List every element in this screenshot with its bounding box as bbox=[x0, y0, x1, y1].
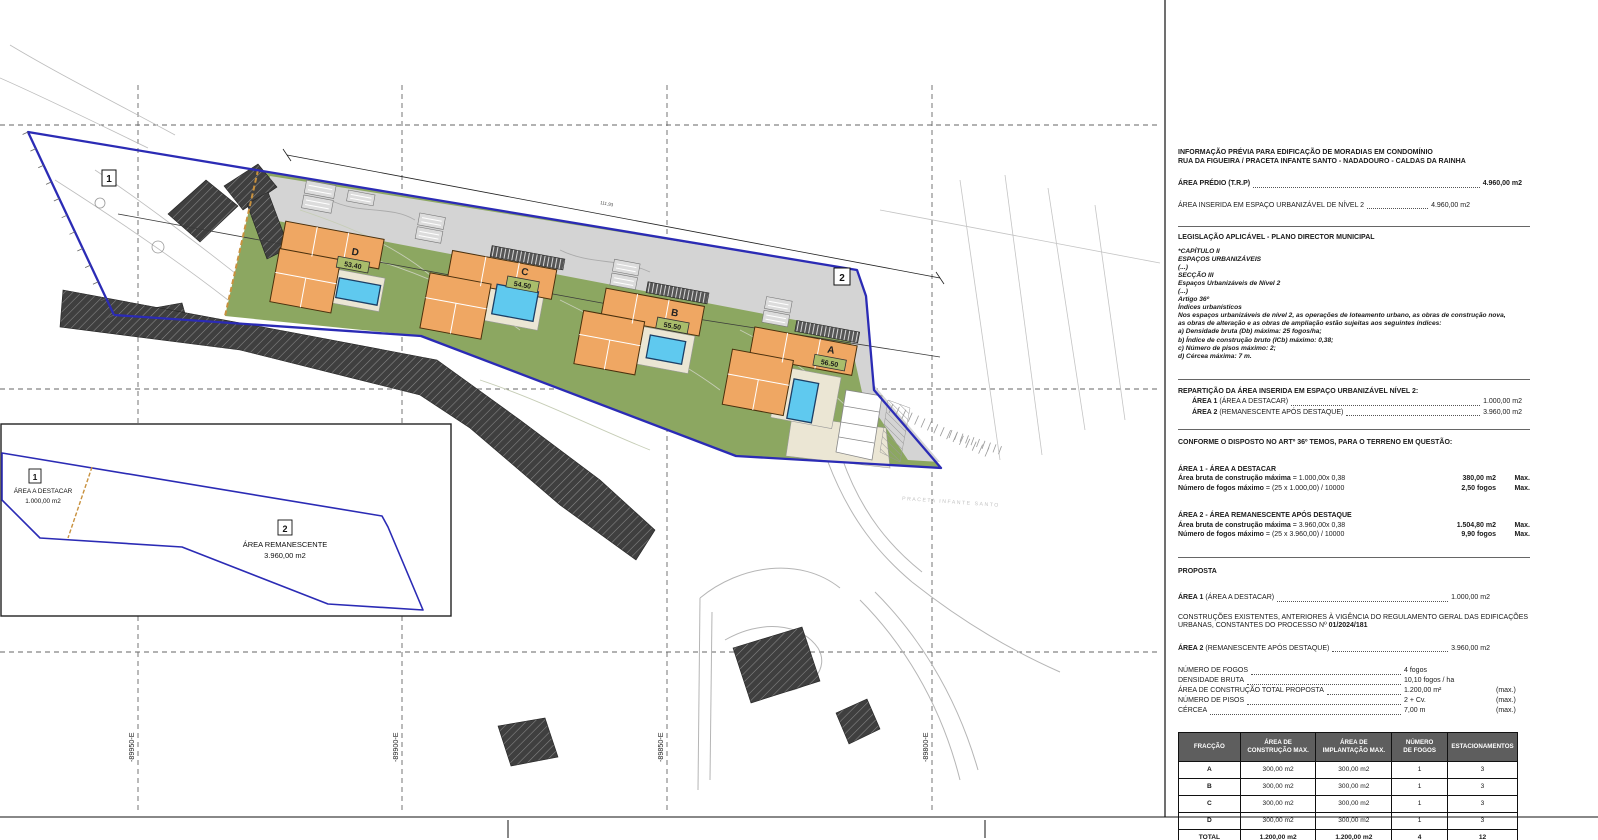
area-block-row-max: Max. bbox=[1496, 531, 1530, 540]
table-header-cell: NÚMERODE FOGOS bbox=[1392, 732, 1448, 761]
inset-area1-label: ÁREA A DESTACAR bbox=[14, 486, 73, 495]
reparticao-rows: ÁREA 1 (ÁREA A DESTACAR)1.000,00 m2ÁREA … bbox=[1192, 398, 1530, 417]
table-row: B300,00 m2300,00 m213 bbox=[1179, 778, 1518, 795]
dotted-leader bbox=[1367, 208, 1428, 209]
reparticao-row-value: 3.960,00 m2 bbox=[1483, 409, 1522, 418]
detachment-inset: 1 ÁREA A DESTACAR 1.000,00 m2 2 ÁREA REM… bbox=[1, 424, 451, 616]
inset-area2-label: ÁREA REMANESCENTE bbox=[243, 540, 328, 549]
table-row: C300,00 m2300,00 m213 bbox=[1179, 795, 1518, 812]
proposta-area1-value: 1.000,00 m2 bbox=[1451, 594, 1490, 603]
legislacao-line: Índices urbanísticos bbox=[1178, 304, 1530, 312]
reparticao-row-value: 1.000,00 m2 bbox=[1483, 398, 1522, 407]
area-block-title: ÁREA 1 - ÁREA A DESTACAR bbox=[1178, 466, 1530, 475]
proposal-row: NÚMERO DE PISOS2 + Cv.(max.) bbox=[1178, 697, 1530, 706]
dotted-leader bbox=[1346, 415, 1480, 416]
legislacao-title: LEGISLAÇÃO APLICÁVEL - PLANO DIRECTOR MU… bbox=[1178, 234, 1530, 243]
area-predio-row: ÁREA PRÉDIO (T.R.P) 4.960,00 m2 bbox=[1178, 180, 1522, 189]
table-total-row: TOTAL1.200,00 m21.200,00 m2412 bbox=[1179, 829, 1518, 840]
area-block-row-value: 380,00 m2 bbox=[1416, 475, 1496, 484]
table-cell: 3 bbox=[1448, 812, 1518, 829]
legislacao-line: c) Número de pisos máximo: 2; bbox=[1178, 345, 1530, 353]
legislacao-line: a) Densidade bruta (Db) máxima: 25 fogos… bbox=[1178, 328, 1530, 336]
separator bbox=[1178, 429, 1530, 430]
legislacao-line: Espaços Urbanizáveis de Nível 2 bbox=[1178, 280, 1530, 288]
panel-title-line2: RUA DA FIGUEIRA / PRACETA INFANTE SANTO … bbox=[1178, 157, 1530, 166]
panel-title-line1: INFORMAÇÃO PRÉVIA PARA EDIFICAÇÃO DE MOR… bbox=[1178, 148, 1530, 157]
area-block-row-max: Max. bbox=[1496, 522, 1530, 531]
reparticao-row-label: ÁREA 1 (ÁREA A DESTACAR) bbox=[1192, 398, 1288, 407]
table-header-cell: ESTACIONAMENTOS bbox=[1448, 732, 1518, 761]
table-cell: 300,00 m2 bbox=[1240, 812, 1316, 829]
table-cell: 3 bbox=[1448, 761, 1518, 778]
grid-label: -89900-E bbox=[391, 732, 400, 762]
proposal-row-label: NÚMERO DE PISOS bbox=[1178, 697, 1244, 706]
proposal-row-value: 4 fogos bbox=[1404, 667, 1496, 676]
table-header-cell: ÁREA DECONSTRUÇÃO MAX. bbox=[1240, 732, 1316, 761]
svg-text:1: 1 bbox=[106, 174, 112, 185]
area-inserida-label: ÁREA INSERIDA EM ESPAÇO URBANIZÁVEL DE N… bbox=[1178, 202, 1364, 211]
proposta-area2-value: 3.960,00 m2 bbox=[1451, 645, 1490, 654]
proposal-row-max: (max.) bbox=[1496, 687, 1530, 696]
legislacao-line: as obras de alteração e as obras de ampl… bbox=[1178, 320, 1530, 328]
area-block-row-label: Área bruta de construção máxima = 1.000,… bbox=[1178, 475, 1416, 484]
legislacao-line: ESPAÇOS URBANIZÁVEIS bbox=[1178, 256, 1530, 264]
dotted-leader bbox=[1251, 674, 1401, 675]
table-cell: 300,00 m2 bbox=[1316, 778, 1392, 795]
legislacao-block: *CAPÍTULO IIESPAÇOS URBANIZÁVEIS(...)SEC… bbox=[1178, 248, 1530, 361]
fractions-table: FRACÇÃOÁREA DECONSTRUÇÃO MAX.ÁREA DEIMPL… bbox=[1178, 732, 1518, 840]
legislacao-line: Nos espaços urbanizáveis de nível 2, as … bbox=[1178, 312, 1530, 320]
construcoes-line1: CONSTRUÇÕES EXISTENTES, ANTERIORES À VIG… bbox=[1178, 614, 1530, 623]
proposta-area1-sub: (ÁREA A DESTACAR) bbox=[1205, 594, 1274, 601]
proposal-row-value: 2 + Cv. bbox=[1404, 697, 1496, 706]
proposal-row: CÉRCEA7,00 m(max.) bbox=[1178, 707, 1530, 716]
conforme-title: CONFORME O DISPOSTO NO ARTº 36º TEMOS, P… bbox=[1178, 439, 1530, 448]
proposal-row: NÚMERO DE FOGOS4 fogos bbox=[1178, 667, 1530, 676]
table-cell: 3 bbox=[1448, 778, 1518, 795]
area-inserida-row: ÁREA INSERIDA EM ESPAÇO URBANIZÁVEL DE N… bbox=[1178, 202, 1470, 211]
separator bbox=[1178, 226, 1530, 227]
proposal-row-value: 7,00 m bbox=[1404, 707, 1496, 716]
dotted-leader bbox=[1291, 405, 1480, 406]
legislacao-line: (...) bbox=[1178, 288, 1530, 296]
area1-marker: 1 bbox=[102, 170, 116, 186]
proposal-rows: NÚMERO DE FOGOS4 fogosDENSIDADE BRUTA10,… bbox=[1178, 667, 1530, 716]
table-total-cell: 12 bbox=[1448, 829, 1518, 840]
construcoes-line2: URBANAS, CONSTANTES DO PROCESSO Nº 01/20… bbox=[1178, 622, 1530, 631]
boundary-wall-ticks bbox=[23, 132, 114, 318]
dotted-leader bbox=[1327, 694, 1401, 695]
table-row: D300,00 m2300,00 m213 bbox=[1179, 812, 1518, 829]
proposal-row-label: DENSIDADE BRUTA bbox=[1178, 677, 1244, 686]
table-cell: 300,00 m2 bbox=[1240, 795, 1316, 812]
inset-area2-value: 3.960,00 m2 bbox=[264, 551, 306, 560]
table-cell: 300,00 m2 bbox=[1240, 778, 1316, 795]
table-cell: B bbox=[1179, 778, 1241, 795]
dotted-leader bbox=[1247, 704, 1401, 705]
table-header-cell: ÁREA DEIMPLANTAÇÃO MAX. bbox=[1316, 732, 1392, 761]
grid-label: -89850-E bbox=[656, 732, 665, 762]
area-block-row-value: 9,90 fogos bbox=[1416, 531, 1496, 540]
dotted-leader bbox=[1253, 187, 1480, 188]
area-inserida-value: 4.960,00 m2 bbox=[1431, 202, 1470, 211]
table-cell: 1 bbox=[1392, 795, 1448, 812]
inset-marker-2: 2 bbox=[282, 524, 287, 534]
table-header-row: FRACÇÃOÁREA DECONSTRUÇÃO MAX.ÁREA DEIMPL… bbox=[1179, 732, 1518, 761]
proposal-row-label: ÁREA DE CONSTRUÇÃO TOTAL PROPOSTA bbox=[1178, 687, 1324, 696]
table-header-cell: FRACÇÃO bbox=[1179, 732, 1241, 761]
dimension-label: 111,93 bbox=[600, 200, 614, 207]
proposal-row-max: (max.) bbox=[1496, 707, 1530, 716]
svg-text:2: 2 bbox=[839, 273, 845, 284]
drawing-sheet: -89950-E-89900-E-89850-E-89800-E bbox=[0, 0, 1598, 840]
table-total-cell: 4 bbox=[1392, 829, 1448, 840]
area-predio-value: 4.960,00 m2 bbox=[1483, 180, 1522, 189]
legislacao-line: *CAPÍTULO II bbox=[1178, 248, 1530, 256]
table-cell: A bbox=[1179, 761, 1241, 778]
table-cell: D bbox=[1179, 812, 1241, 829]
area1-block: ÁREA 1 - ÁREA A DESTACARÁrea bruta de co… bbox=[1178, 466, 1530, 494]
area-block-row-value: 2,50 fogos bbox=[1416, 485, 1496, 494]
area2-block: ÁREA 2 - ÁREA REMANESCENTE APÓS DESTAQUE… bbox=[1178, 512, 1530, 540]
info-panel: INFORMAÇÃO PRÉVIA PARA EDIFICAÇÃO DE MOR… bbox=[1178, 148, 1530, 840]
table-cell: 300,00 m2 bbox=[1240, 761, 1316, 778]
area-block-row: Área bruta de construção máxima = 3.960,… bbox=[1178, 522, 1530, 531]
proposal-row: ÁREA DE CONSTRUÇÃO TOTAL PROPOSTA1.200,0… bbox=[1178, 687, 1530, 696]
area-block-title: ÁREA 2 - ÁREA REMANESCENTE APÓS DESTAQUE bbox=[1178, 512, 1530, 521]
inset-area1-value: 1.000,00 m2 bbox=[25, 498, 61, 505]
legislacao-line: (...) bbox=[1178, 264, 1530, 272]
reparticao-title: REPARTIÇÃO DA ÁREA INSERIDA EM ESPAÇO UR… bbox=[1178, 388, 1530, 397]
separator bbox=[1178, 557, 1530, 558]
table-total-cell: TOTAL bbox=[1179, 829, 1241, 840]
area-predio-label: ÁREA PRÉDIO (T.R.P) bbox=[1178, 180, 1250, 189]
dotted-leader bbox=[1332, 651, 1448, 652]
legislacao-line: Artigo 36º bbox=[1178, 296, 1530, 304]
process-number: 01/2024/181 bbox=[1329, 622, 1368, 629]
legislacao-line: SECÇÃO III bbox=[1178, 272, 1530, 280]
area-block-row-label: Número de fogos máximo = (25 x 1.000,00)… bbox=[1178, 485, 1416, 494]
street-label: PRACETA INFANTE SANTO bbox=[902, 496, 1000, 509]
area-block-row-max: Max. bbox=[1496, 485, 1530, 494]
inset-marker-1: 1 bbox=[33, 472, 38, 482]
proposal-row-label: CÉRCEA bbox=[1178, 707, 1207, 716]
area-block-row-value: 1.504,80 m2 bbox=[1416, 522, 1496, 531]
table-cell: 300,00 m2 bbox=[1316, 812, 1392, 829]
proposta-area2-label: ÁREA 2 bbox=[1178, 645, 1203, 652]
area-block-row: Área bruta de construção máxima = 1.000,… bbox=[1178, 475, 1530, 484]
dotted-leader bbox=[1247, 684, 1401, 685]
reparticao-row: ÁREA 1 (ÁREA A DESTACAR)1.000,00 m2 bbox=[1192, 398, 1522, 407]
dotted-leader bbox=[1210, 714, 1401, 715]
table-cell: 3 bbox=[1448, 795, 1518, 812]
proposal-row-label: NÚMERO DE FOGOS bbox=[1178, 667, 1248, 676]
proposal-row-value: 1.200,00 m² bbox=[1404, 687, 1496, 696]
construcoes-paragraph: CONSTRUÇÕES EXISTENTES, ANTERIORES À VIG… bbox=[1178, 614, 1530, 631]
grid-label: -89950-E bbox=[127, 732, 136, 762]
proposta-area1-label: ÁREA 1 bbox=[1178, 594, 1203, 601]
area-block-row-label: Área bruta de construção máxima = 3.960,… bbox=[1178, 522, 1416, 531]
proposta-area2-row: ÁREA 2 (REMANESCENTE APÓS DESTAQUE) 3.96… bbox=[1178, 645, 1490, 654]
reparticao-row-label: ÁREA 2 (REMANESCENTE APÓS DESTAQUE) bbox=[1192, 409, 1343, 418]
proposta-area1-row: ÁREA 1 (ÁREA A DESTACAR) 1.000,00 m2 bbox=[1178, 594, 1490, 603]
area2-marker: 2 bbox=[834, 268, 850, 285]
legislacao-line: b) Índice de construção bruto (ICb) máxi… bbox=[1178, 337, 1530, 345]
proposal-row: DENSIDADE BRUTA10,10 fogos / ha bbox=[1178, 677, 1530, 686]
table-cell: C bbox=[1179, 795, 1241, 812]
table-row: A300,00 m2300,00 m213 bbox=[1179, 761, 1518, 778]
reparticao-row: ÁREA 2 (REMANESCENTE APÓS DESTAQUE)3.960… bbox=[1192, 409, 1522, 418]
grid-label: -89800-E bbox=[921, 732, 930, 762]
area-block-row-label: Número de fogos máximo = (25 x 3.960,00)… bbox=[1178, 531, 1416, 540]
table-total-cell: 1.200,00 m2 bbox=[1240, 829, 1316, 840]
table-total-cell: 1.200,00 m2 bbox=[1316, 829, 1392, 840]
area-block-row-max: Max. bbox=[1496, 475, 1530, 484]
proposta-title: PROPOSTA bbox=[1178, 568, 1530, 577]
table-cell: 1 bbox=[1392, 761, 1448, 778]
proposal-row-value: 10,10 fogos / ha bbox=[1404, 677, 1496, 686]
dotted-leader bbox=[1277, 601, 1448, 602]
table-cell: 1 bbox=[1392, 812, 1448, 829]
area-block-row: Número de fogos máximo = (25 x 1.000,00)… bbox=[1178, 485, 1530, 494]
proposal-row-max: (max.) bbox=[1496, 697, 1530, 706]
separator bbox=[1178, 379, 1530, 380]
table-cell: 300,00 m2 bbox=[1316, 761, 1392, 778]
area-block-row: Número de fogos máximo = (25 x 3.960,00)… bbox=[1178, 531, 1530, 540]
legislacao-line: d) Cércea máxima: 7 m. bbox=[1178, 353, 1530, 361]
table-cell: 1 bbox=[1392, 778, 1448, 795]
table-cell: 300,00 m2 bbox=[1316, 795, 1392, 812]
proposta-area2-sub: (REMANESCENTE APÓS DESTAQUE) bbox=[1205, 645, 1329, 652]
